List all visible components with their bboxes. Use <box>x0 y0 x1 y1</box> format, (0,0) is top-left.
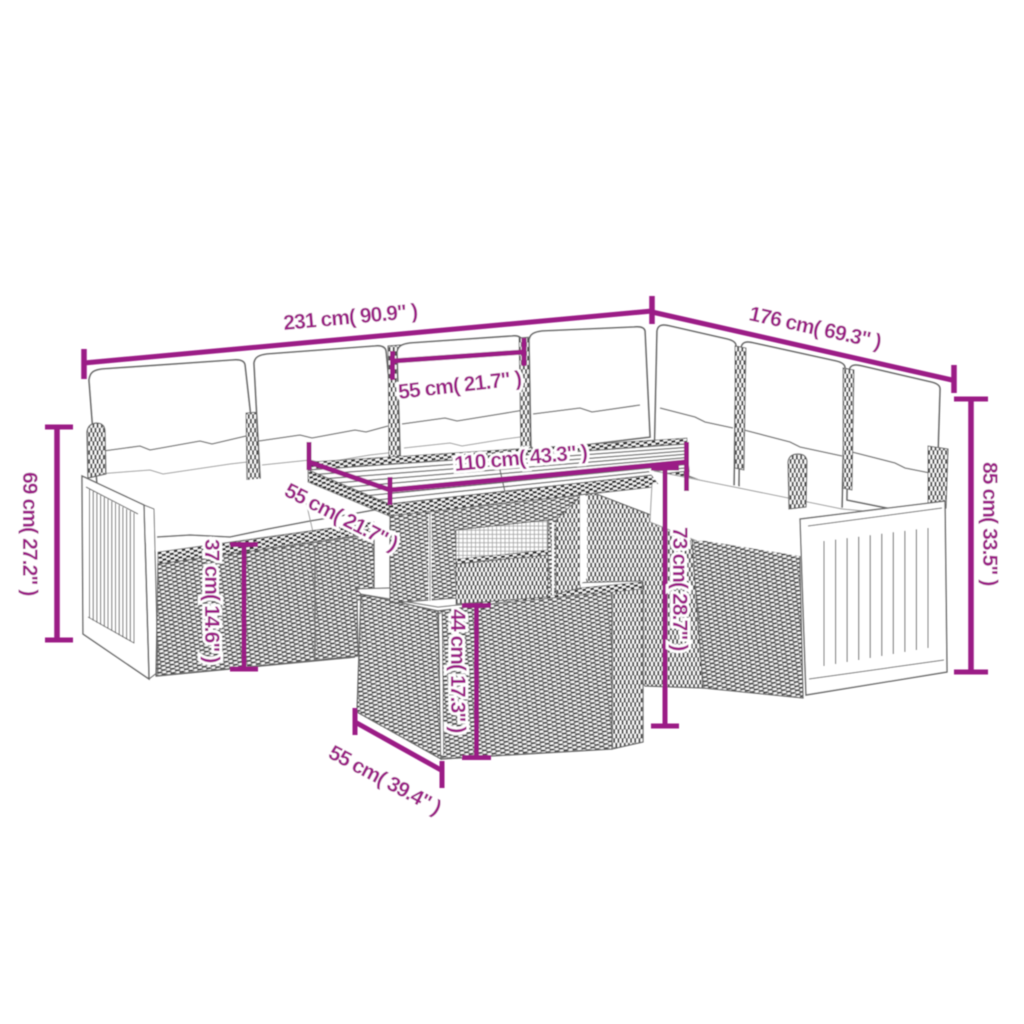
svg-text:44 cm( 17.3" ): 44 cm( 17.3" ) <box>446 609 469 732</box>
svg-text:69 cm( 27.2" ): 69 cm( 27.2" ) <box>18 472 41 595</box>
svg-text:73 cm( 28.7" ): 73 cm( 28.7" ) <box>668 527 691 650</box>
svg-text:37 cm( 14.6" ): 37 cm( 14.6" ) <box>200 539 223 662</box>
svg-text:85 cm( 33.5" ): 85 cm( 33.5" ) <box>978 462 1001 585</box>
